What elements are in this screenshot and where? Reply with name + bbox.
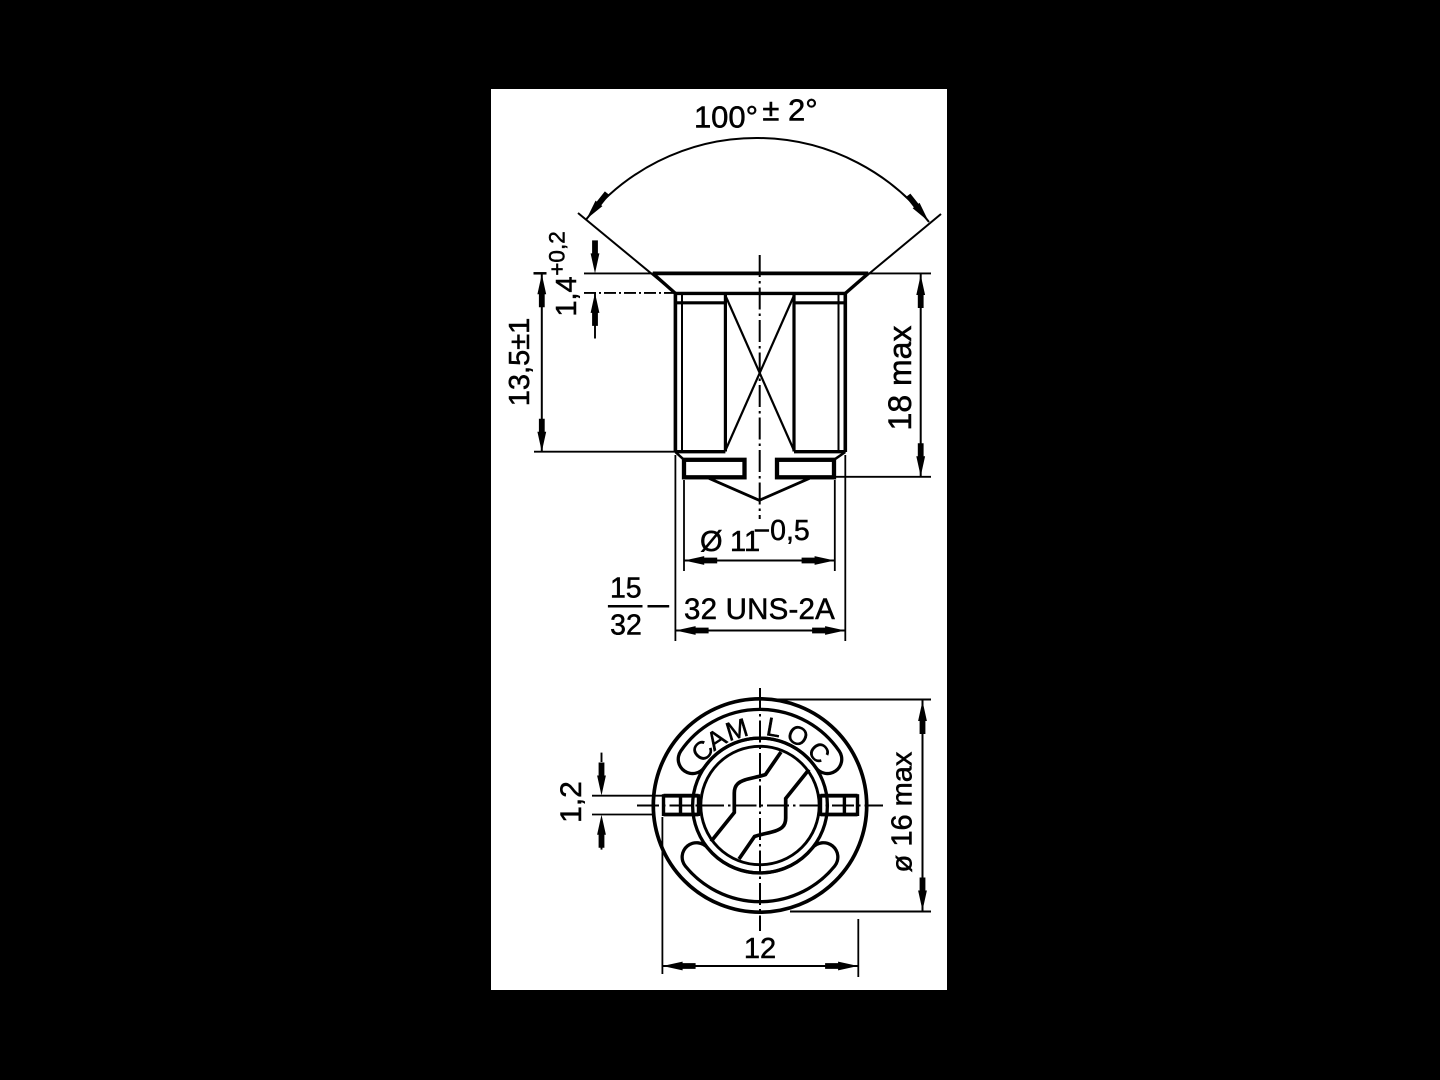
svg-text:15: 15 xyxy=(610,573,642,605)
svg-text:+0,2: +0,2 xyxy=(545,231,570,275)
svg-text:100°: 100° xyxy=(694,100,758,135)
svg-text:ø 16 max: ø 16 max xyxy=(887,751,919,872)
svg-text:32: 32 xyxy=(610,610,642,642)
svg-text:12: 12 xyxy=(744,933,776,965)
svg-text:32 UNS-2A: 32 UNS-2A xyxy=(684,593,835,626)
svg-text:Ø: Ø xyxy=(700,526,723,558)
svg-text:−0,5: −0,5 xyxy=(754,515,810,547)
svg-text:18 max: 18 max xyxy=(882,326,918,431)
svg-text:1,2: 1,2 xyxy=(555,781,588,823)
svg-text:1,4: 1,4 xyxy=(551,276,583,316)
svg-text:13,5±1: 13,5±1 xyxy=(504,318,536,407)
svg-text:± 2°: ± 2° xyxy=(762,93,817,128)
